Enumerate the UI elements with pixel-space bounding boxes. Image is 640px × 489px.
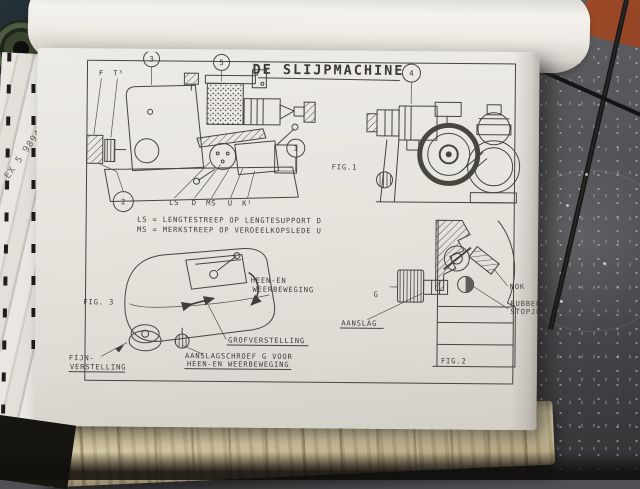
- callout-1: 1: [287, 139, 305, 157]
- axis-label-ms: MS: [206, 198, 216, 207]
- part-letter-f: F: [99, 68, 104, 77]
- axis-label-ls: LS: [169, 198, 179, 207]
- fig3-label-heen-1: HEEN-EN: [251, 276, 287, 285]
- main-figure: [86, 66, 315, 203]
- axis-label-u: U: [228, 198, 233, 207]
- technical-drawing: DE SLIJPMACHINE: [44, 51, 539, 427]
- page-title: DE SLIJPMACHINE: [252, 62, 404, 79]
- svg-text:VERSTELLING: VERSTELLING: [70, 362, 126, 371]
- fig3-caption: FIG. 3: [83, 297, 114, 306]
- fig2-label-g: G: [373, 290, 378, 299]
- fig3-label-heen-2: WEERBEWEGING: [253, 285, 315, 295]
- callout-3: 3: [143, 51, 159, 67]
- svg-text:FIJN-: FIJN-: [69, 353, 95, 362]
- fig2-label-aanslag: AANSLAG: [340, 318, 383, 328]
- fig2-drawing: [367, 220, 516, 367]
- svg-text:4: 4: [409, 69, 414, 78]
- svg-text:2: 2: [121, 197, 126, 206]
- axis-label-d: D: [192, 198, 197, 207]
- part-letter-t3: T³: [113, 68, 123, 77]
- callout-4: 4: [402, 64, 420, 82]
- dust-speck: [560, 300, 563, 303]
- dust-speck: [585, 173, 588, 176]
- dust-speck: [566, 204, 569, 207]
- bottom-shadow: [0, 452, 640, 480]
- svg-text:AANSLAG: AANSLAG: [341, 318, 377, 327]
- svg-text:1: 1: [293, 144, 298, 153]
- fig3-label-fijn: FIJN- VERSTELLING: [69, 353, 127, 372]
- svg-text:5: 5: [219, 58, 224, 67]
- legend-line-2: MS = MERKSTREEP OP VERDEELKOPSLEDE U: [137, 225, 322, 236]
- svg-text:GROFVERSTELLING: GROFVERSTELLING: [228, 335, 305, 345]
- fig3-label-grof: GROFVERSTELLING: [227, 335, 308, 345]
- axis-label-k1: K¹: [242, 199, 252, 208]
- dust-speck: [603, 262, 606, 265]
- fig3-label-aanslagschroef: AANSLAGSCHROEF G VOOR HEEN-EN WEERBEWEGI…: [185, 351, 293, 369]
- svg-text:HEEN-EN WEERBEWEGING: HEEN-EN WEERBEWEGING: [187, 359, 290, 369]
- manual-page: DE SLIJPMACHINE: [34, 48, 539, 430]
- svg-text:3: 3: [149, 54, 154, 63]
- callout-5: 5: [213, 54, 229, 70]
- binding-dashes: [1, 53, 12, 437]
- fig1-caption: FIG.1: [332, 162, 358, 171]
- fig2-caption: FIG.2: [441, 356, 467, 365]
- page-right-edge-shade: [510, 52, 539, 430]
- fig1-drawing: [366, 82, 520, 203]
- legend-line-1: LS = LENGTESTREEP OP LENGTESUPPORT D: [137, 215, 322, 226]
